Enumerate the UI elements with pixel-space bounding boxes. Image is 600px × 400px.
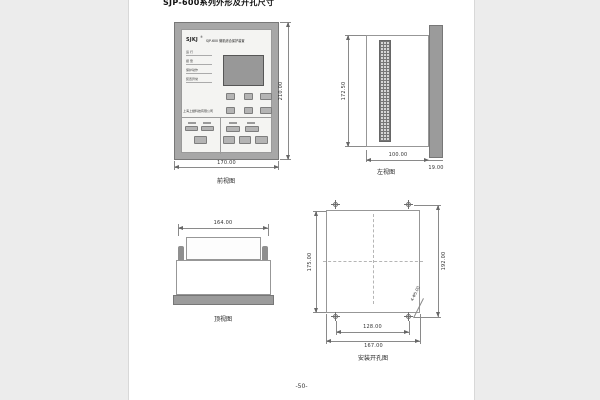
extension-line [409, 321, 410, 335]
extension-line [420, 314, 421, 344]
page-number: -50- [129, 383, 474, 390]
dim-arrow [366, 158, 371, 162]
front-view-caption: 前视图 [206, 176, 246, 185]
dim-hole-spacing-h: 128.00 [356, 324, 389, 330]
dim-line-hole-spacing-h [336, 332, 409, 333]
mounting-hole [406, 314, 411, 319]
top-view-rear-section [186, 237, 261, 260]
dim-arrow [178, 226, 183, 230]
dim-arrow [174, 165, 179, 169]
button-label [188, 122, 196, 124]
dim-line-top-width [178, 228, 268, 229]
dim-cutout-height: 175.00 [307, 249, 313, 275]
dim-line-depth [366, 160, 429, 161]
panel-divider-horizontal [182, 117, 271, 118]
dim-line-width [174, 167, 279, 168]
dim-arrow [336, 330, 341, 334]
indicator-protect-action: 保护动作 [186, 68, 212, 74]
centerline-vertical [373, 214, 374, 304]
led-window [201, 126, 214, 131]
registered-mark: ® [200, 35, 203, 39]
top-view-front-plate [173, 295, 274, 305]
dim-arrow [263, 226, 268, 230]
company-name: 上海上继科技有限公司 [183, 109, 227, 113]
device-title: SJP-600 微机综合保护装置 [206, 38, 245, 43]
dim-arrow [436, 312, 440, 317]
extension-line [268, 224, 269, 236]
keypad-confirm-button [260, 93, 272, 100]
side-view-front-plate [429, 25, 443, 158]
dim-top-width: 164.00 [207, 220, 239, 226]
button-label [203, 122, 211, 124]
dim-line-panel-thickness [429, 160, 443, 161]
dim-arrow [436, 205, 440, 210]
mounting-clip-left [178, 246, 184, 260]
dim-arrow [314, 308, 318, 313]
panel-button [223, 136, 235, 144]
dim-cutout-width: 167.00 [357, 343, 390, 349]
keypad-up-button [226, 93, 235, 100]
mounting-hole [333, 314, 338, 319]
indicator-alarm: 报 警 [186, 59, 212, 65]
dim-arrow [404, 330, 409, 334]
document-viewer: SJP-600系列外形及开孔尺寸 SJKJ ® SJP-600 微机综合保护装置… [0, 0, 600, 400]
keypad-minus-button [244, 107, 253, 114]
dim-arrow [286, 22, 290, 27]
panel-button [245, 126, 259, 132]
lcd-screen [223, 55, 264, 86]
keypad-plus-button [244, 93, 253, 100]
top-view-caption: 顶视图 [203, 314, 243, 323]
dim-arrow [274, 165, 279, 169]
mounting-clip-right [262, 246, 268, 260]
dim-side-depth: 100.00 [382, 152, 414, 158]
dim-arrow [346, 142, 350, 147]
side-view-body [366, 35, 429, 147]
extension-line [414, 317, 441, 318]
panel-button [255, 136, 268, 144]
dim-line-height [288, 22, 289, 160]
dim-line-cutout-width [326, 341, 420, 342]
led-window [185, 126, 198, 131]
button-label [247, 122, 255, 124]
mounting-hole [406, 202, 411, 207]
indicator-run: 运 行 [186, 50, 212, 56]
keypad-down-button [226, 107, 235, 114]
dim-line-side-height [348, 35, 349, 147]
dim-arrow [326, 339, 331, 343]
dim-panel-thickness: 19.00 [422, 165, 450, 171]
dim-arrow [346, 35, 350, 40]
manual-page: SJP-600系列外形及开孔尺寸 SJKJ ® SJP-600 微机综合保护装置… [128, 0, 475, 400]
cutout-view-caption: 安装开孔图 [343, 353, 403, 362]
dim-hole-spacing-v: 192.00 [441, 248, 447, 274]
dim-front-height: 210.00 [278, 78, 284, 104]
dim-arrow [415, 339, 420, 343]
button-label [229, 122, 237, 124]
mounting-hole [333, 202, 338, 207]
indicator-device-fault: 装置异常 [186, 77, 212, 83]
dim-arrow [286, 155, 290, 160]
panel-button [226, 126, 240, 132]
reset-button [194, 136, 207, 144]
dim-line-hole-spacing-v [438, 205, 439, 317]
dim-arrow [314, 211, 318, 216]
dim-line-cutout-height [316, 211, 317, 313]
keypad-cancel-button [260, 107, 272, 114]
panel-divider-vertical [220, 117, 221, 154]
brand-logo: SJKJ [186, 37, 198, 43]
side-view-caption: 左视图 [366, 167, 406, 176]
page-title: SJP-600系列外形及开孔尺寸 [163, 0, 274, 8]
dim-side-height: 172.50 [341, 78, 347, 104]
centerline-horizontal [323, 261, 423, 262]
front-view-faceplate: SJKJ ® SJP-600 微机综合保护装置 运 行 报 警 保护动作 装置异… [181, 29, 272, 153]
panel-button [239, 136, 251, 144]
terminal-block [379, 40, 391, 142]
top-view-body [176, 260, 271, 295]
dim-front-width: 170.00 [210, 160, 243, 166]
